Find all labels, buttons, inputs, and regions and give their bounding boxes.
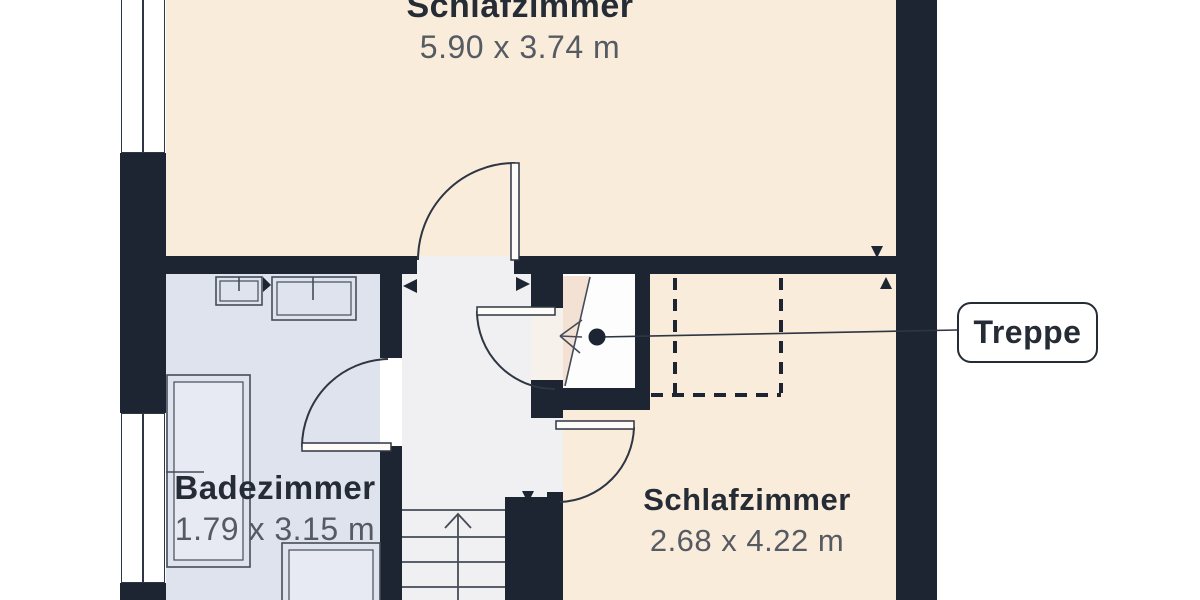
wall-left-upper (120, 153, 166, 413)
window-mullion (142, 414, 144, 582)
wall-bathroom-right-upper (380, 274, 402, 358)
wall-stair-enclosure-left-upper (531, 274, 563, 308)
wall-bedroom-right-block-notch (547, 492, 563, 497)
floor-plan: Schlafzimmer 5.90 x 3.74 m Badezimmer 1.… (0, 0, 1200, 600)
room-name: Schlafzimmer (597, 482, 897, 518)
door-opening-top-bedroom (417, 256, 514, 274)
wall-main-horizontal (166, 256, 897, 274)
label-bedroom-right: Schlafzimmer 2.68 x 4.22 m (597, 482, 897, 559)
wall-right (896, 0, 937, 600)
treppe-callout: Treppe (957, 302, 1098, 363)
room-bathroom-floor (166, 274, 380, 600)
room-name: Schlafzimmer (320, 0, 720, 26)
room-dimensions: 2.68 x 4.22 m (597, 523, 897, 559)
wall-bedroom-right-block (505, 497, 563, 600)
room-dimensions: 5.90 x 3.74 m (320, 29, 720, 66)
wall-left-lower (120, 583, 166, 600)
wall-stair-enclosure-left-lower (531, 380, 563, 418)
wall-stair-enclosure-right (635, 274, 650, 410)
label-bedroom-top: Schlafzimmer 5.90 x 3.74 m (320, 0, 720, 66)
room-name: Badezimmer (155, 469, 395, 507)
stair-enclosure-floor (563, 274, 635, 390)
window-top-left (121, 0, 165, 153)
label-bathroom: Badezimmer 1.79 x 3.15 m (155, 469, 395, 548)
treppe-callout-label: Treppe (974, 314, 1082, 351)
window-mullion (142, 0, 144, 152)
room-dimensions: 1.79 x 3.15 m (155, 511, 395, 548)
stair-door-swing-zone (531, 308, 563, 380)
